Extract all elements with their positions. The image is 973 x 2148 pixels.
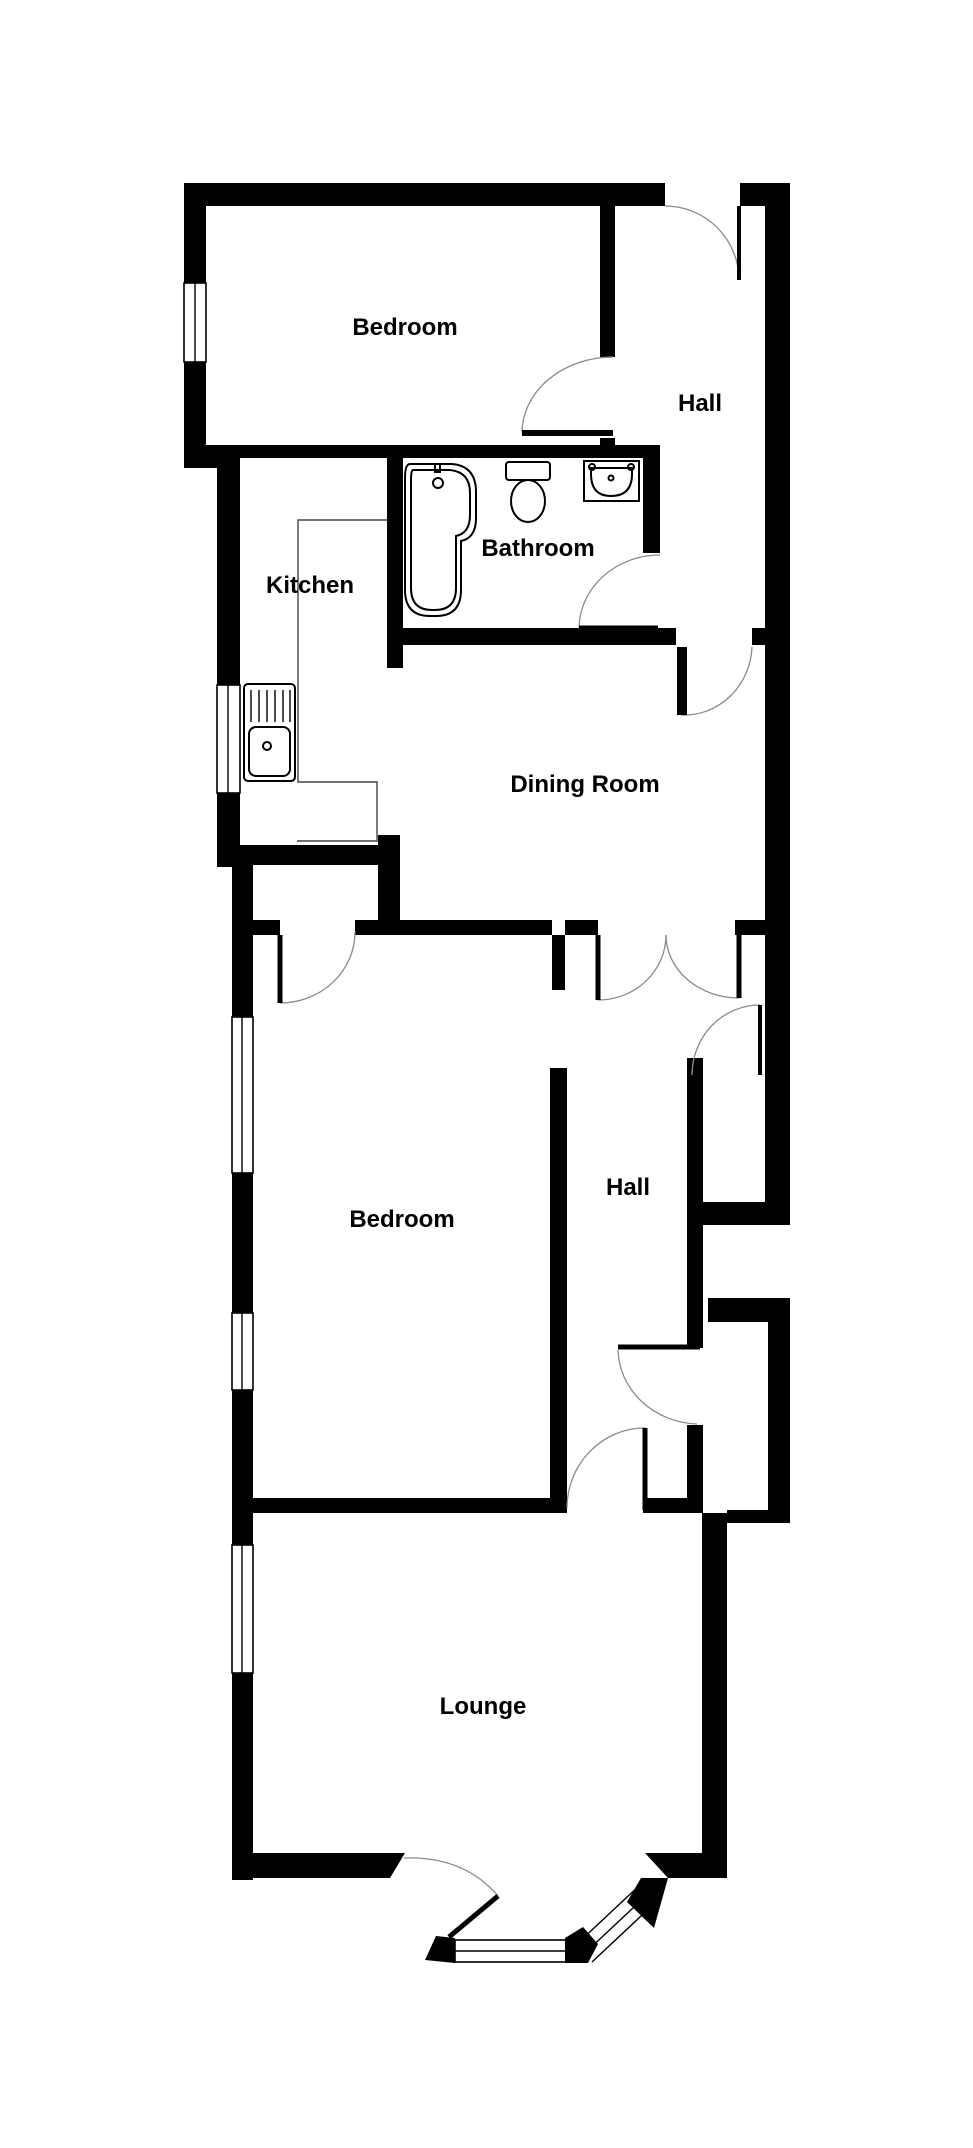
dining-door	[681, 647, 752, 715]
bay-door	[404, 1858, 498, 1937]
window-bedroom2-a	[232, 1017, 253, 1173]
kitchen-counter	[297, 520, 387, 841]
outer-walls	[184, 183, 790, 1928]
window-bedroom1	[184, 283, 206, 362]
dining-hall-double-doors	[598, 935, 739, 1000]
toilet	[506, 462, 550, 522]
bathroom-door	[579, 555, 660, 629]
window-bedroom2-b	[232, 1313, 253, 1390]
lounge-door	[567, 1428, 645, 1510]
label-bedroom-2: Bedroom	[349, 1206, 454, 1233]
kitchen-sink	[244, 684, 295, 781]
label-hall-2: Hall	[606, 1174, 650, 1201]
front-door	[665, 206, 739, 280]
label-kitchen: Kitchen	[266, 572, 354, 599]
hall-store-door	[618, 1347, 700, 1424]
bay-window	[425, 1884, 656, 1963]
label-hall-1: Hall	[678, 390, 722, 417]
bedroom1-door	[522, 357, 613, 433]
bath	[405, 464, 476, 616]
window-kitchen	[217, 685, 240, 793]
window-lounge	[232, 1545, 253, 1673]
basin	[584, 461, 639, 501]
label-dining-room: Dining Room	[510, 771, 659, 798]
floorplan: Bedroom Hall Bathroom Kitchen Dining Roo…	[0, 0, 973, 2148]
bedroom2-closet-door	[280, 932, 355, 1003]
label-lounge: Lounge	[440, 1693, 527, 1720]
label-bathroom: Bathroom	[481, 535, 594, 562]
label-bedroom-1: Bedroom	[352, 314, 457, 341]
